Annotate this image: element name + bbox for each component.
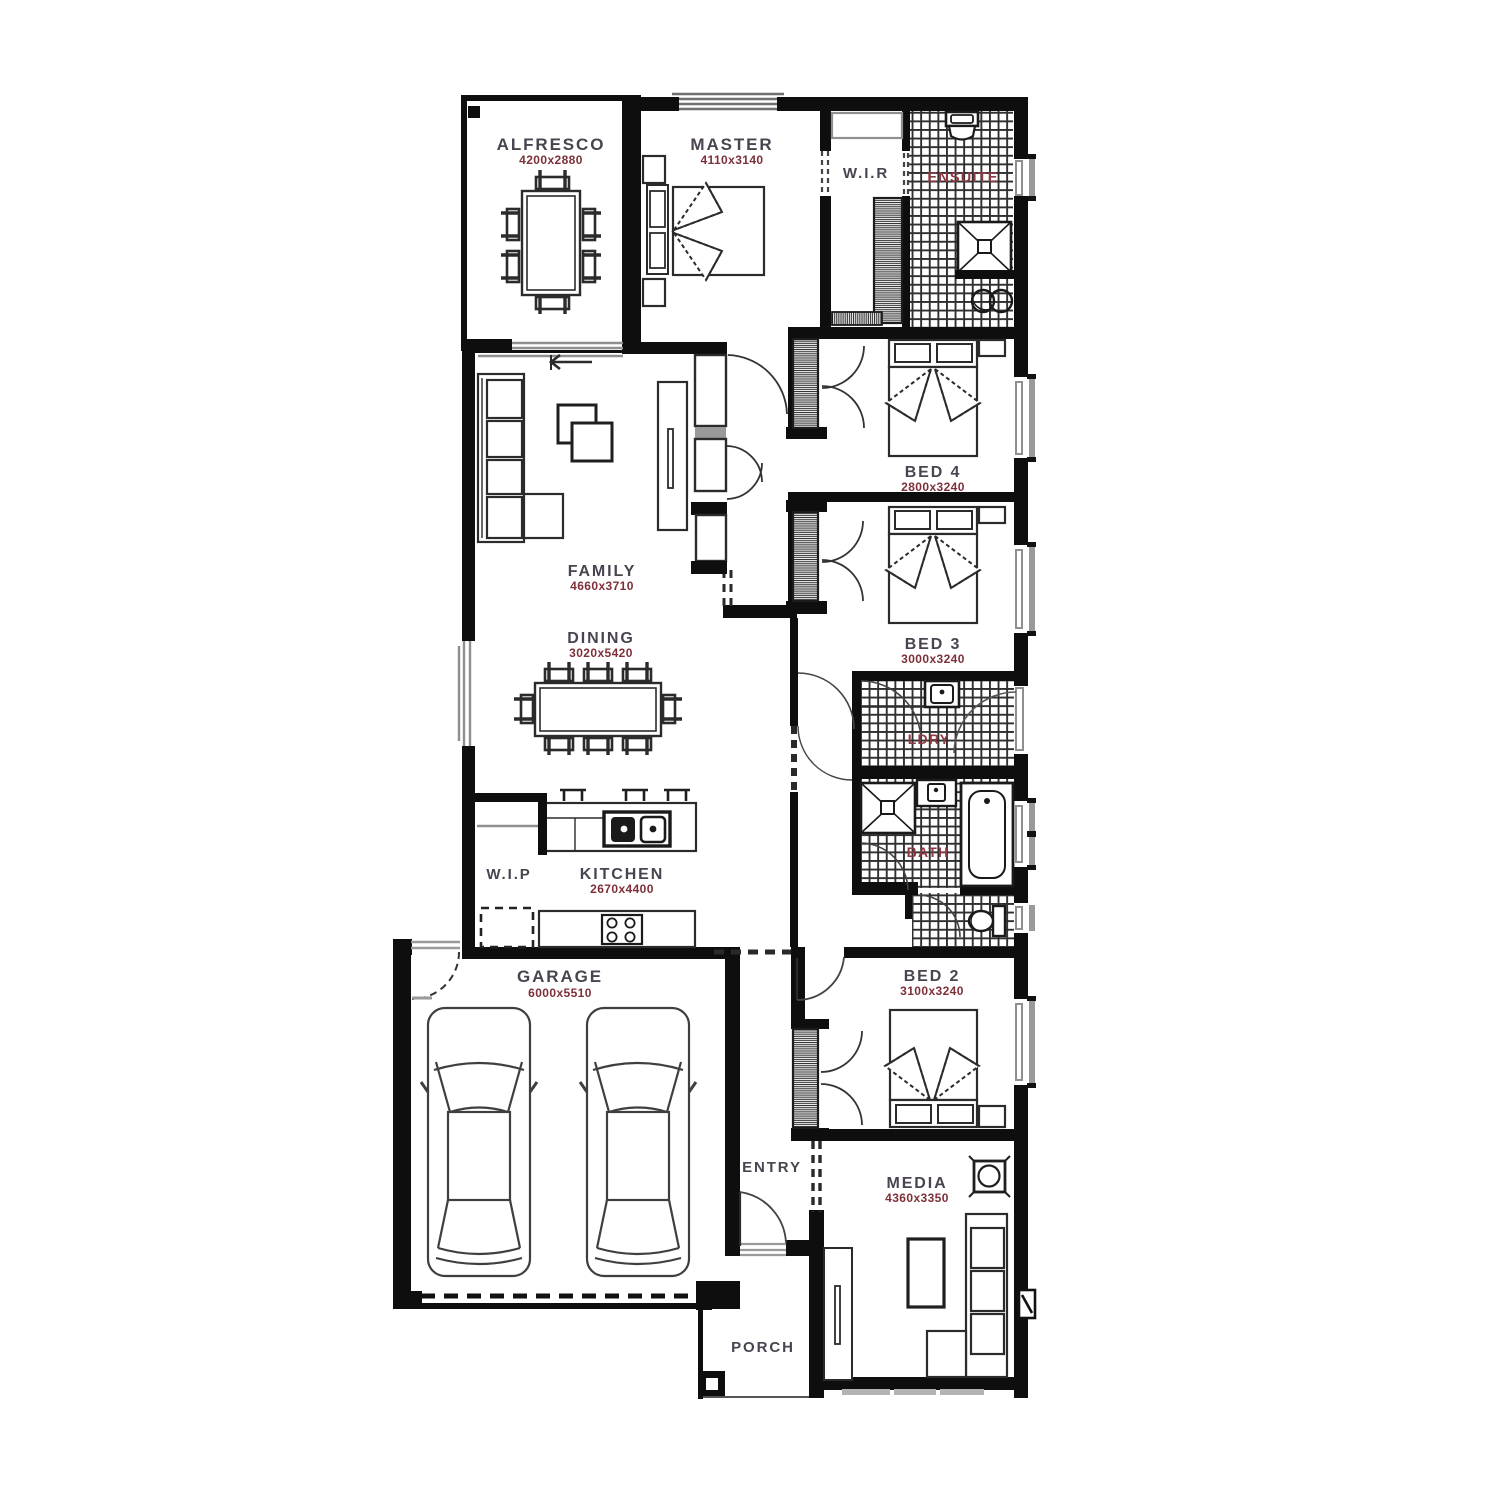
svg-text:BATH: BATH [907, 844, 950, 860]
svg-text:4660x3710: 4660x3710 [570, 579, 634, 593]
svg-text:LDRY: LDRY [908, 731, 950, 747]
svg-text:3000x3240: 3000x3240 [901, 652, 965, 666]
svg-text:W.I.R: W.I.R [843, 165, 889, 182]
svg-text:ENTRY: ENTRY [742, 1159, 802, 1176]
svg-text:GARAGE: GARAGE [517, 967, 603, 986]
svg-text:4360x3350: 4360x3350 [885, 1191, 949, 1205]
svg-text:ALFRESCO: ALFRESCO [497, 135, 606, 154]
svg-text:FAMILY: FAMILY [568, 563, 637, 580]
svg-text:MEDIA: MEDIA [886, 1175, 947, 1192]
svg-text:3100x3240: 3100x3240 [900, 984, 964, 998]
svg-text:3020x5420: 3020x5420 [569, 646, 633, 660]
svg-text:6000x5510: 6000x5510 [528, 986, 592, 1000]
svg-text:KITCHEN: KITCHEN [580, 866, 664, 883]
svg-text:PORCH: PORCH [731, 1339, 795, 1356]
svg-text:ENSUITE: ENSUITE [927, 170, 998, 186]
svg-text:2670x4400: 2670x4400 [590, 882, 654, 896]
svg-text:MASTER: MASTER [690, 135, 773, 154]
svg-text:4200x2880: 4200x2880 [519, 153, 583, 167]
svg-text:BED 2: BED 2 [904, 968, 961, 985]
svg-text:BED 3: BED 3 [905, 636, 962, 653]
svg-text:4110x3140: 4110x3140 [700, 153, 763, 167]
svg-text:DINING: DINING [567, 630, 634, 647]
svg-text:2800x3240: 2800x3240 [901, 480, 965, 494]
svg-text:W.I.P: W.I.P [486, 866, 531, 883]
svg-text:BED 4: BED 4 [905, 464, 962, 481]
